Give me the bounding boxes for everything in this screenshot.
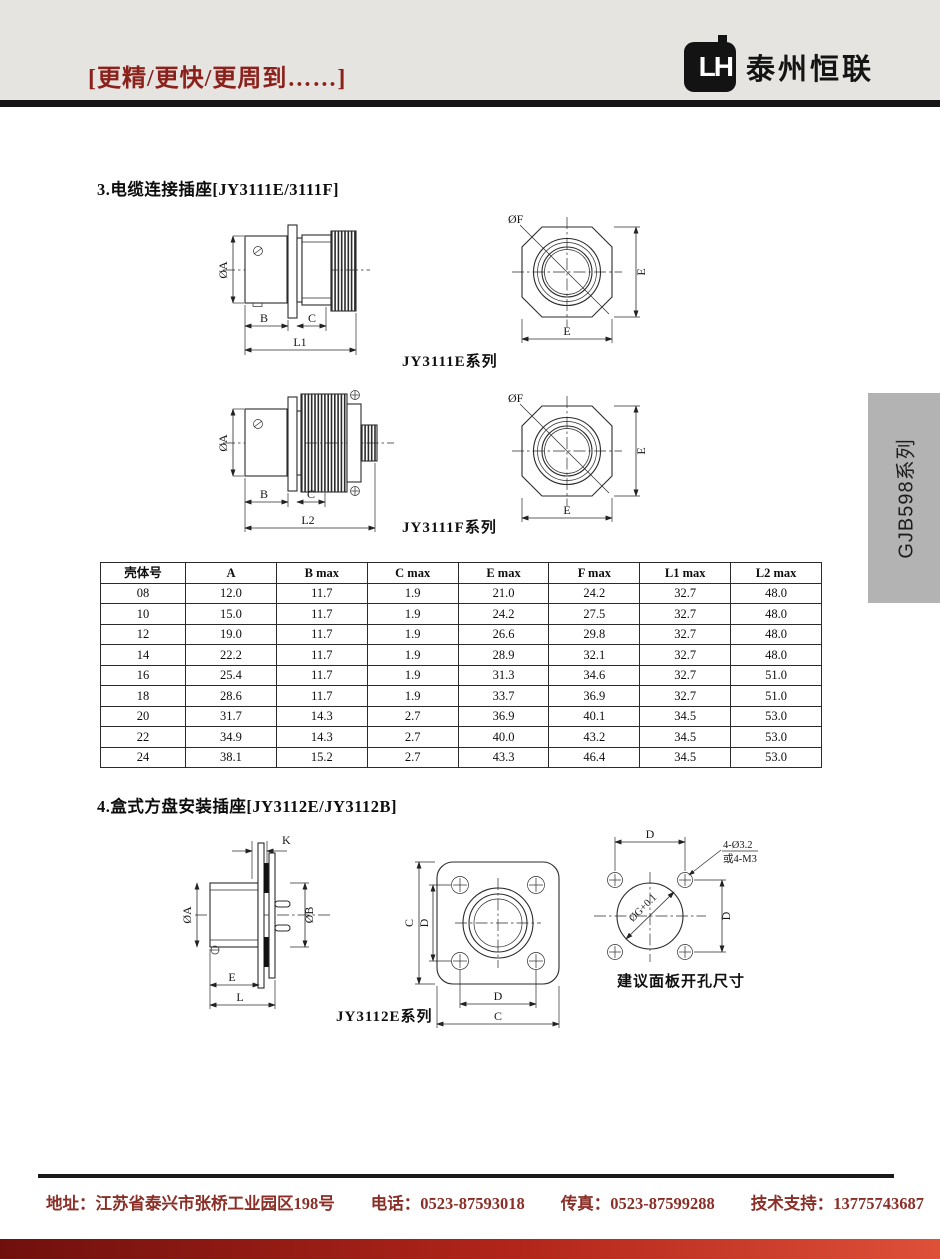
table-row: 1015.011.71.924.227.532.748.0 — [101, 604, 822, 625]
header-slogan: [更精/更快/更周到……] — [88, 58, 346, 93]
logo-stub-shape — [718, 35, 727, 46]
table-cell: 32.7 — [640, 583, 731, 604]
table-cell: 31.3 — [458, 665, 549, 686]
table-header-cell: L1 max — [640, 563, 731, 584]
table-cell: 11.7 — [276, 686, 367, 707]
table-cell: 2.7 — [367, 727, 458, 748]
footer-support: 技术支持：13775743687 — [751, 1190, 924, 1214]
dim-label-e-v: E — [634, 447, 648, 454]
dim-label-e: E — [228, 970, 235, 984]
dim-label-k: K — [282, 833, 291, 847]
table-cell: 11.7 — [276, 665, 367, 686]
table-cell: 43.3 — [458, 747, 549, 768]
table-header-row: 壳体号AB maxC maxE maxF maxL1 maxL2 max — [101, 563, 822, 584]
brand-logo: LH 泰州恒联 — [684, 42, 874, 92]
table-cell: 48.0 — [731, 624, 822, 645]
dim-label-e-h: E — [563, 503, 570, 517]
table-row: 1625.411.71.931.334.632.751.0 — [101, 665, 822, 686]
table-cell: 12 — [101, 624, 186, 645]
table-header-cell: E max — [458, 563, 549, 584]
brand-logo-icon: LH — [684, 42, 736, 92]
table-cell: 36.9 — [549, 686, 640, 707]
dim-label-dia-g: ØG+0.1 — [627, 892, 659, 924]
table-cell: 24.2 — [458, 604, 549, 625]
table-row: 1219.011.71.926.629.832.748.0 — [101, 624, 822, 645]
series-side-tab: GJB598系列 — [868, 393, 940, 603]
dim-label-dia-a: ØA — [183, 906, 194, 924]
table-cell: 14.3 — [276, 727, 367, 748]
table-cell: 1.9 — [367, 686, 458, 707]
table-cell: 33.7 — [458, 686, 549, 707]
table-cell: 40.0 — [458, 727, 549, 748]
table-row: 1422.211.71.928.932.132.748.0 — [101, 645, 822, 666]
table-cell: 28.9 — [458, 645, 549, 666]
dim-label-l1: L1 — [293, 335, 306, 349]
dim-label-l2: L2 — [301, 513, 314, 527]
table-cell: 46.4 — [549, 747, 640, 768]
table-header-cell: 壳体号 — [101, 563, 186, 584]
table-cell: 10 — [101, 604, 186, 625]
table-cell: 12.0 — [186, 583, 277, 604]
dim-label-b: B — [260, 487, 268, 501]
table-cell: 51.0 — [731, 665, 822, 686]
table-cell: 24 — [101, 747, 186, 768]
table-cell: 16 — [101, 665, 186, 686]
table-cell: 21.0 — [458, 583, 549, 604]
table-cell: 53.0 — [731, 706, 822, 727]
dim-label-dia-a: ØA — [216, 434, 230, 452]
table-row: 2234.914.32.740.043.234.553.0 — [101, 727, 822, 748]
table-cell: 38.1 — [186, 747, 277, 768]
figure1-caption: JY3111E系列 — [402, 350, 498, 371]
table-cell: 11.7 — [276, 583, 367, 604]
table-cell: 32.1 — [549, 645, 640, 666]
table-cell: 14 — [101, 645, 186, 666]
table-cell: 20 — [101, 706, 186, 727]
dim-label-c-left: C — [403, 919, 416, 927]
dim-label-c: C — [307, 487, 315, 501]
table-cell: 32.7 — [640, 624, 731, 645]
header-divider — [0, 100, 940, 107]
dim-label-e-v: E — [634, 268, 648, 275]
table-cell: 53.0 — [731, 747, 822, 768]
footer: 地址：江苏省泰兴市张桥工业园区198号 电话：0523-87593018 传真：… — [46, 1190, 912, 1214]
dim-label-c-bottom: C — [494, 1009, 502, 1023]
dim-label-d-left: D — [417, 918, 431, 927]
table-cell: 27.5 — [549, 604, 640, 625]
table-header-cell: F max — [549, 563, 640, 584]
table-cell: 14.3 — [276, 706, 367, 727]
table-cell: 28.6 — [186, 686, 277, 707]
catalog-page: [更精/更快/更周到……] LH 泰州恒联 3.电缆连接插座[JY3111E/3… — [0, 0, 940, 1259]
jy3111f-front-view-drawing: ØF E E — [468, 372, 683, 537]
table-cell: 26.6 — [458, 624, 549, 645]
table-cell: 53.0 — [731, 727, 822, 748]
dim-label-dia-f: ØF — [508, 391, 524, 405]
table-cell: 40.1 — [549, 706, 640, 727]
table-cell: 43.2 — [549, 727, 640, 748]
holes-note-line2: 或4-M3 — [723, 853, 757, 865]
dim-label-dia-a: ØA — [216, 261, 230, 279]
table-cell: 34.5 — [640, 706, 731, 727]
dim-label-d-top: D — [646, 828, 655, 841]
section3-title: 3.电缆连接插座[JY3111E/3111F] — [97, 176, 339, 200]
table-cell: 31.7 — [186, 706, 277, 727]
table-header-cell: C max — [367, 563, 458, 584]
jy3112e-side-view-drawing: K ØA ØB E L — [183, 833, 403, 1018]
table-cell: 18 — [101, 686, 186, 707]
jy3111f-side-view-drawing: ØA B C L2 — [198, 380, 403, 550]
table-row: 2031.714.32.736.940.134.553.0 — [101, 706, 822, 727]
dim-label-dia-f: ØF — [508, 212, 524, 226]
table-cell: 34.5 — [640, 747, 731, 768]
table-cell: 29.8 — [549, 624, 640, 645]
logo-monogram: LH — [699, 51, 732, 83]
cutout-caption: 建议面板开孔尺寸 — [617, 970, 745, 991]
table-cell: 24.2 — [549, 583, 640, 604]
table-cell: 34.9 — [186, 727, 277, 748]
table-header-cell: L2 max — [731, 563, 822, 584]
table-header-cell: A — [186, 563, 277, 584]
table-cell: 48.0 — [731, 583, 822, 604]
holes-note-line1: 4-Ø3.2 — [723, 840, 752, 851]
table-cell: 22 — [101, 727, 186, 748]
jy3111e-side-view-drawing: ØA B C L1 — [198, 210, 378, 370]
table-cell: 32.7 — [640, 665, 731, 686]
table-cell: 15.2 — [276, 747, 367, 768]
dim-label-l: L — [236, 990, 243, 1004]
footer-address: 地址：江苏省泰兴市张桥工业园区198号 — [46, 1190, 335, 1214]
brand-name: 泰州恒联 — [746, 46, 874, 88]
table-cell: 1.9 — [367, 604, 458, 625]
dim-label-b: B — [260, 311, 268, 325]
footer-divider — [38, 1174, 894, 1178]
table-cell: 48.0 — [731, 604, 822, 625]
table-cell: 32.7 — [640, 604, 731, 625]
table-cell: 22.2 — [186, 645, 277, 666]
footer-fax: 传真：0523-87599288 — [561, 1190, 715, 1214]
table-cell: 25.4 — [186, 665, 277, 686]
table-cell: 11.7 — [276, 624, 367, 645]
figure3-caption: JY3112E系列 — [336, 1005, 433, 1026]
dimension-table: 壳体号AB maxC maxE maxF maxL1 maxL2 max 081… — [100, 562, 822, 768]
table-header-cell: B max — [276, 563, 367, 584]
dim-label-e-h: E — [563, 324, 570, 338]
table-row: 0812.011.71.921.024.232.748.0 — [101, 583, 822, 604]
table-cell: 32.7 — [640, 686, 731, 707]
table-cell: 08 — [101, 583, 186, 604]
table-cell: 15.0 — [186, 604, 277, 625]
series-side-tab-label: GJB598系列 — [890, 438, 919, 558]
table-cell: 32.7 — [640, 645, 731, 666]
dim-label-d-right: D — [719, 911, 733, 920]
footer-accent-bar — [0, 1239, 940, 1259]
table-cell: 34.5 — [640, 727, 731, 748]
table-cell: 1.9 — [367, 624, 458, 645]
table-row: 1828.611.71.933.736.932.751.0 — [101, 686, 822, 707]
table-cell: 34.6 — [549, 665, 640, 686]
figure2-caption: JY3111F系列 — [402, 516, 497, 537]
table-cell: 2.7 — [367, 706, 458, 727]
table-cell: 1.9 — [367, 665, 458, 686]
table-cell: 1.9 — [367, 583, 458, 604]
dim-label-dia-b: ØB — [302, 907, 316, 924]
table-cell: 51.0 — [731, 686, 822, 707]
footer-phone: 电话：0523-87593018 — [371, 1190, 525, 1214]
table-cell: 1.9 — [367, 645, 458, 666]
table-cell: 11.7 — [276, 645, 367, 666]
table-row: 2438.115.22.743.346.434.553.0 — [101, 747, 822, 768]
table-cell: 11.7 — [276, 604, 367, 625]
section4-title: 4.盒式方盘安装插座[JY3112E/JY3112B] — [97, 793, 397, 817]
page-header: [更精/更快/更周到……] LH 泰州恒联 — [0, 0, 940, 100]
dim-label-c: C — [308, 311, 316, 325]
table-cell: 2.7 — [367, 747, 458, 768]
jy3111e-front-view-drawing: ØF E E — [468, 193, 683, 358]
table-cell: 36.9 — [458, 706, 549, 727]
table-cell: 48.0 — [731, 645, 822, 666]
panel-cutout-drawing: ØG+0.1 D D 4-Ø3.2 或4-M3 — [588, 828, 938, 978]
dim-label-d-bottom: D — [494, 989, 503, 1003]
table-cell: 19.0 — [186, 624, 277, 645]
